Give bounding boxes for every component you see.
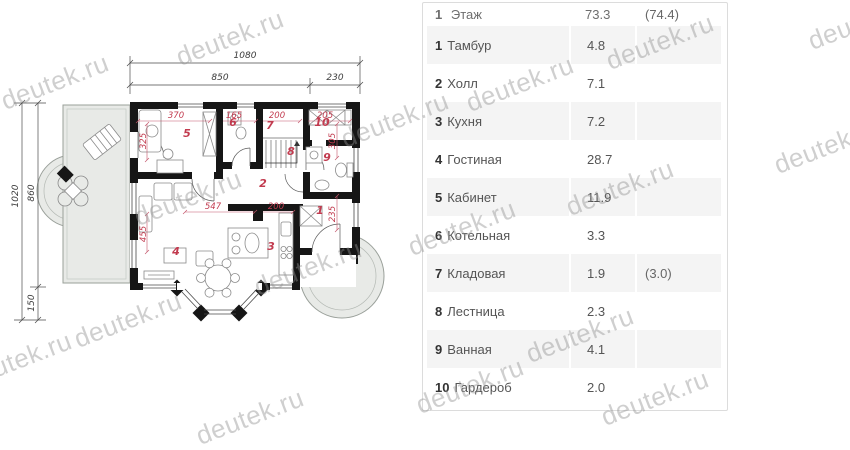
room-row-number: 4 xyxy=(435,152,442,167)
room-row-area-extra xyxy=(637,330,721,368)
room-row-area: 11.9 xyxy=(571,178,635,216)
floor-label: Этаж xyxy=(451,7,482,22)
dimension-label: 860 xyxy=(27,184,37,201)
watermark-text: deutek.ru xyxy=(804,0,850,57)
dimension-label: 850 xyxy=(211,73,228,83)
room-row-number: 3 xyxy=(435,114,442,129)
room-row-area: 2.0 xyxy=(571,368,635,406)
room-row-number: 10 xyxy=(435,380,449,395)
red-dimension-label: 325 xyxy=(139,133,149,149)
room-row-number: 2 xyxy=(435,76,442,91)
tv-bench xyxy=(144,271,174,279)
room-row-name: Котельная xyxy=(447,228,510,243)
room-row-number: 9 xyxy=(435,342,442,357)
table-row: 5 Кабинет 11.9 xyxy=(427,178,723,216)
table-row: 4 Гостиная 28.7 xyxy=(427,140,723,178)
area-table: 1 Этаж 73.3 (74.4) 1 Тамбур 4.8 2 Холл 7… xyxy=(422,2,728,411)
room-row-name: Тамбур xyxy=(447,38,491,53)
room-row-name: Кухня xyxy=(447,114,482,129)
floor-total-area-gross: (74.4) xyxy=(637,7,721,22)
page: 1080850230102086015037016520020554720032… xyxy=(0,0,850,450)
room-row-area-extra xyxy=(637,102,721,140)
room-row-name: Гостиная xyxy=(447,152,502,167)
room-row-area: 4.8 xyxy=(571,26,635,64)
table-row: 6 Котельная 3.3 xyxy=(427,216,723,254)
room-number-label: 4 xyxy=(171,245,180,258)
room-number-label: 6 xyxy=(229,116,237,129)
room-row-area: 4.1 xyxy=(571,330,635,368)
room-number-label: 3 xyxy=(267,240,275,253)
dimension-label: 1080 xyxy=(234,51,257,61)
dimension-label: 1020 xyxy=(11,184,21,207)
room-row-number: 7 xyxy=(435,266,442,281)
room-row-area-extra xyxy=(637,64,721,102)
table-header: 1 Этаж 73.3 (74.4) xyxy=(423,3,727,26)
room-row-name: Лестница xyxy=(447,304,504,319)
room-row-name: Ванная xyxy=(447,342,492,357)
red-dimension-label: 235 xyxy=(328,206,338,222)
kitchen-island xyxy=(228,228,268,258)
room-row-area: 7.2 xyxy=(571,102,635,140)
floor-total-area: 73.3 xyxy=(571,7,635,22)
room-row-area-extra xyxy=(637,178,721,216)
room-row-number: 8 xyxy=(435,304,442,319)
dimension-label: 150 xyxy=(27,294,37,311)
floor-number: 1 xyxy=(435,7,442,22)
room-row-area-extra: (3.0) xyxy=(637,254,721,292)
room-row-number: 6 xyxy=(435,228,442,243)
room-row-area-extra xyxy=(637,26,721,64)
room-number-label: 7 xyxy=(266,119,274,132)
room-number-label: 8 xyxy=(287,145,295,158)
room-row-area: 7.1 xyxy=(571,64,635,102)
room-number-label: 1 xyxy=(316,204,324,217)
room-row-area: 2.3 xyxy=(571,292,635,330)
room-row-area-extra xyxy=(637,368,721,406)
toilet xyxy=(336,163,354,177)
table-row: 3 Кухня 7.2 xyxy=(427,102,723,140)
room-row-area: 28.7 xyxy=(571,140,635,178)
table-row: 7 Кладовая 1.9 (3.0) xyxy=(427,254,723,292)
floor-plan-drawing: 1080850230102086015037016520020554720032… xyxy=(0,0,420,450)
room-row-area-extra xyxy=(637,292,721,330)
table-row: 8 Лестница 2.3 xyxy=(427,292,723,330)
watermark-text: deutek.ru xyxy=(770,111,850,180)
table-row: 2 Холл 7.1 xyxy=(427,64,723,102)
room-number-label: 10 xyxy=(314,116,330,129)
room-row-area: 1.9 xyxy=(571,254,635,292)
red-dimension-label: 305 xyxy=(328,133,338,149)
dimension-label: 230 xyxy=(326,73,343,83)
room-row-area-extra xyxy=(637,216,721,254)
kitchen-counter xyxy=(279,213,293,275)
table-row: 10 Гардероб 2.0 xyxy=(427,368,723,406)
room-number-label: 9 xyxy=(323,151,331,164)
red-dimension-label: 455 xyxy=(139,226,149,242)
red-dimension-label: 547 xyxy=(205,202,222,212)
room-row-number: 1 xyxy=(435,38,442,53)
red-dimension-label: 200 xyxy=(268,202,284,212)
room-number-label: 5 xyxy=(183,127,191,140)
room-row-name: Гардероб xyxy=(454,380,511,395)
red-dimension-label: 370 xyxy=(168,111,184,121)
table-row: 1 Тамбур 4.8 xyxy=(427,26,723,64)
table-body: 1 Тамбур 4.8 2 Холл 7.1 3 Кухня 7.2 4 Го… xyxy=(423,26,727,410)
room-row-name: Кладовая xyxy=(447,266,505,281)
shower xyxy=(306,147,322,163)
room-row-name: Кабинет xyxy=(447,190,496,205)
washbasin xyxy=(315,180,329,190)
room-number-label: 2 xyxy=(259,177,267,190)
room-row-area-extra xyxy=(637,140,721,178)
room-row-area: 3.3 xyxy=(571,216,635,254)
table-row: 9 Ванная 4.1 xyxy=(427,330,723,368)
room-row-name: Холл xyxy=(447,76,478,91)
office-wardrobe xyxy=(203,112,216,156)
room-row-number: 5 xyxy=(435,190,442,205)
